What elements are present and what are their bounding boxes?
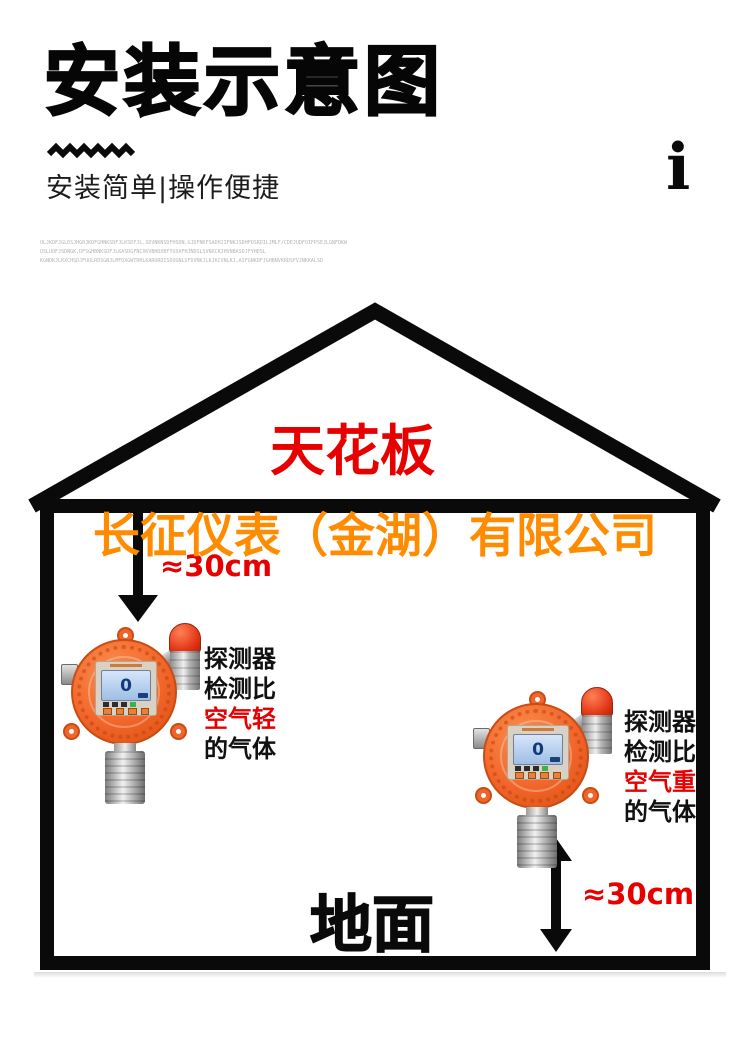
note-line: 探测器 bbox=[624, 707, 696, 737]
button-row bbox=[515, 766, 561, 771]
arrow-head-down bbox=[540, 929, 572, 952]
note-line: 检测比 bbox=[624, 737, 696, 767]
floor-distance-label: ≈30cm bbox=[582, 877, 694, 911]
note-line-highlight: 空气重 bbox=[624, 767, 696, 797]
panel-label-strip bbox=[110, 664, 142, 667]
beacon-dome bbox=[581, 687, 613, 717]
lcd-screen: 0 bbox=[513, 734, 563, 765]
note-line: 的气体 bbox=[204, 734, 276, 764]
note-line-highlight: 空气轻 bbox=[204, 704, 276, 734]
status-led bbox=[130, 702, 136, 707]
detector-note-right: 探测器 检测比 空气重 的气体 bbox=[624, 707, 696, 827]
detector-note-left: 探测器 检测比 空气轻 的气体 bbox=[204, 644, 276, 764]
gas-sensor bbox=[105, 751, 145, 804]
gas-sensor bbox=[517, 815, 557, 868]
floor-shadow bbox=[34, 972, 726, 978]
mounting-ear bbox=[475, 787, 492, 804]
mounting-ear bbox=[582, 787, 599, 804]
company-watermark: 长征仪表（金湖）有限公司 bbox=[0, 497, 750, 566]
ceiling-label: 天花板 bbox=[270, 406, 470, 486]
gas-detector-right: 0 bbox=[472, 684, 622, 872]
detector-panel: 0 bbox=[507, 725, 569, 780]
status-led bbox=[542, 766, 548, 771]
button-row bbox=[103, 702, 149, 707]
note-line: 检测比 bbox=[204, 674, 276, 704]
gas-detector-left: 0 bbox=[60, 620, 210, 808]
key-button-row bbox=[103, 708, 149, 715]
beacon-dome bbox=[169, 623, 201, 653]
note-line: 的气体 bbox=[624, 797, 696, 827]
detector-panel: 0 bbox=[95, 661, 157, 716]
note-line: 探测器 bbox=[204, 644, 276, 674]
installation-diagram-page: 安装示意图 安装简单|操作便捷 i OLJKDFJGLDSJHG0JKDFGHN… bbox=[0, 0, 750, 1044]
key-button-row bbox=[515, 772, 561, 779]
mounting-ear bbox=[63, 723, 80, 740]
ground-label: 地面 bbox=[310, 874, 434, 964]
arrow-head-down bbox=[118, 595, 158, 622]
lcd-screen: 0 bbox=[101, 670, 151, 701]
mounting-ear bbox=[170, 723, 187, 740]
panel-label-strip bbox=[522, 728, 554, 731]
